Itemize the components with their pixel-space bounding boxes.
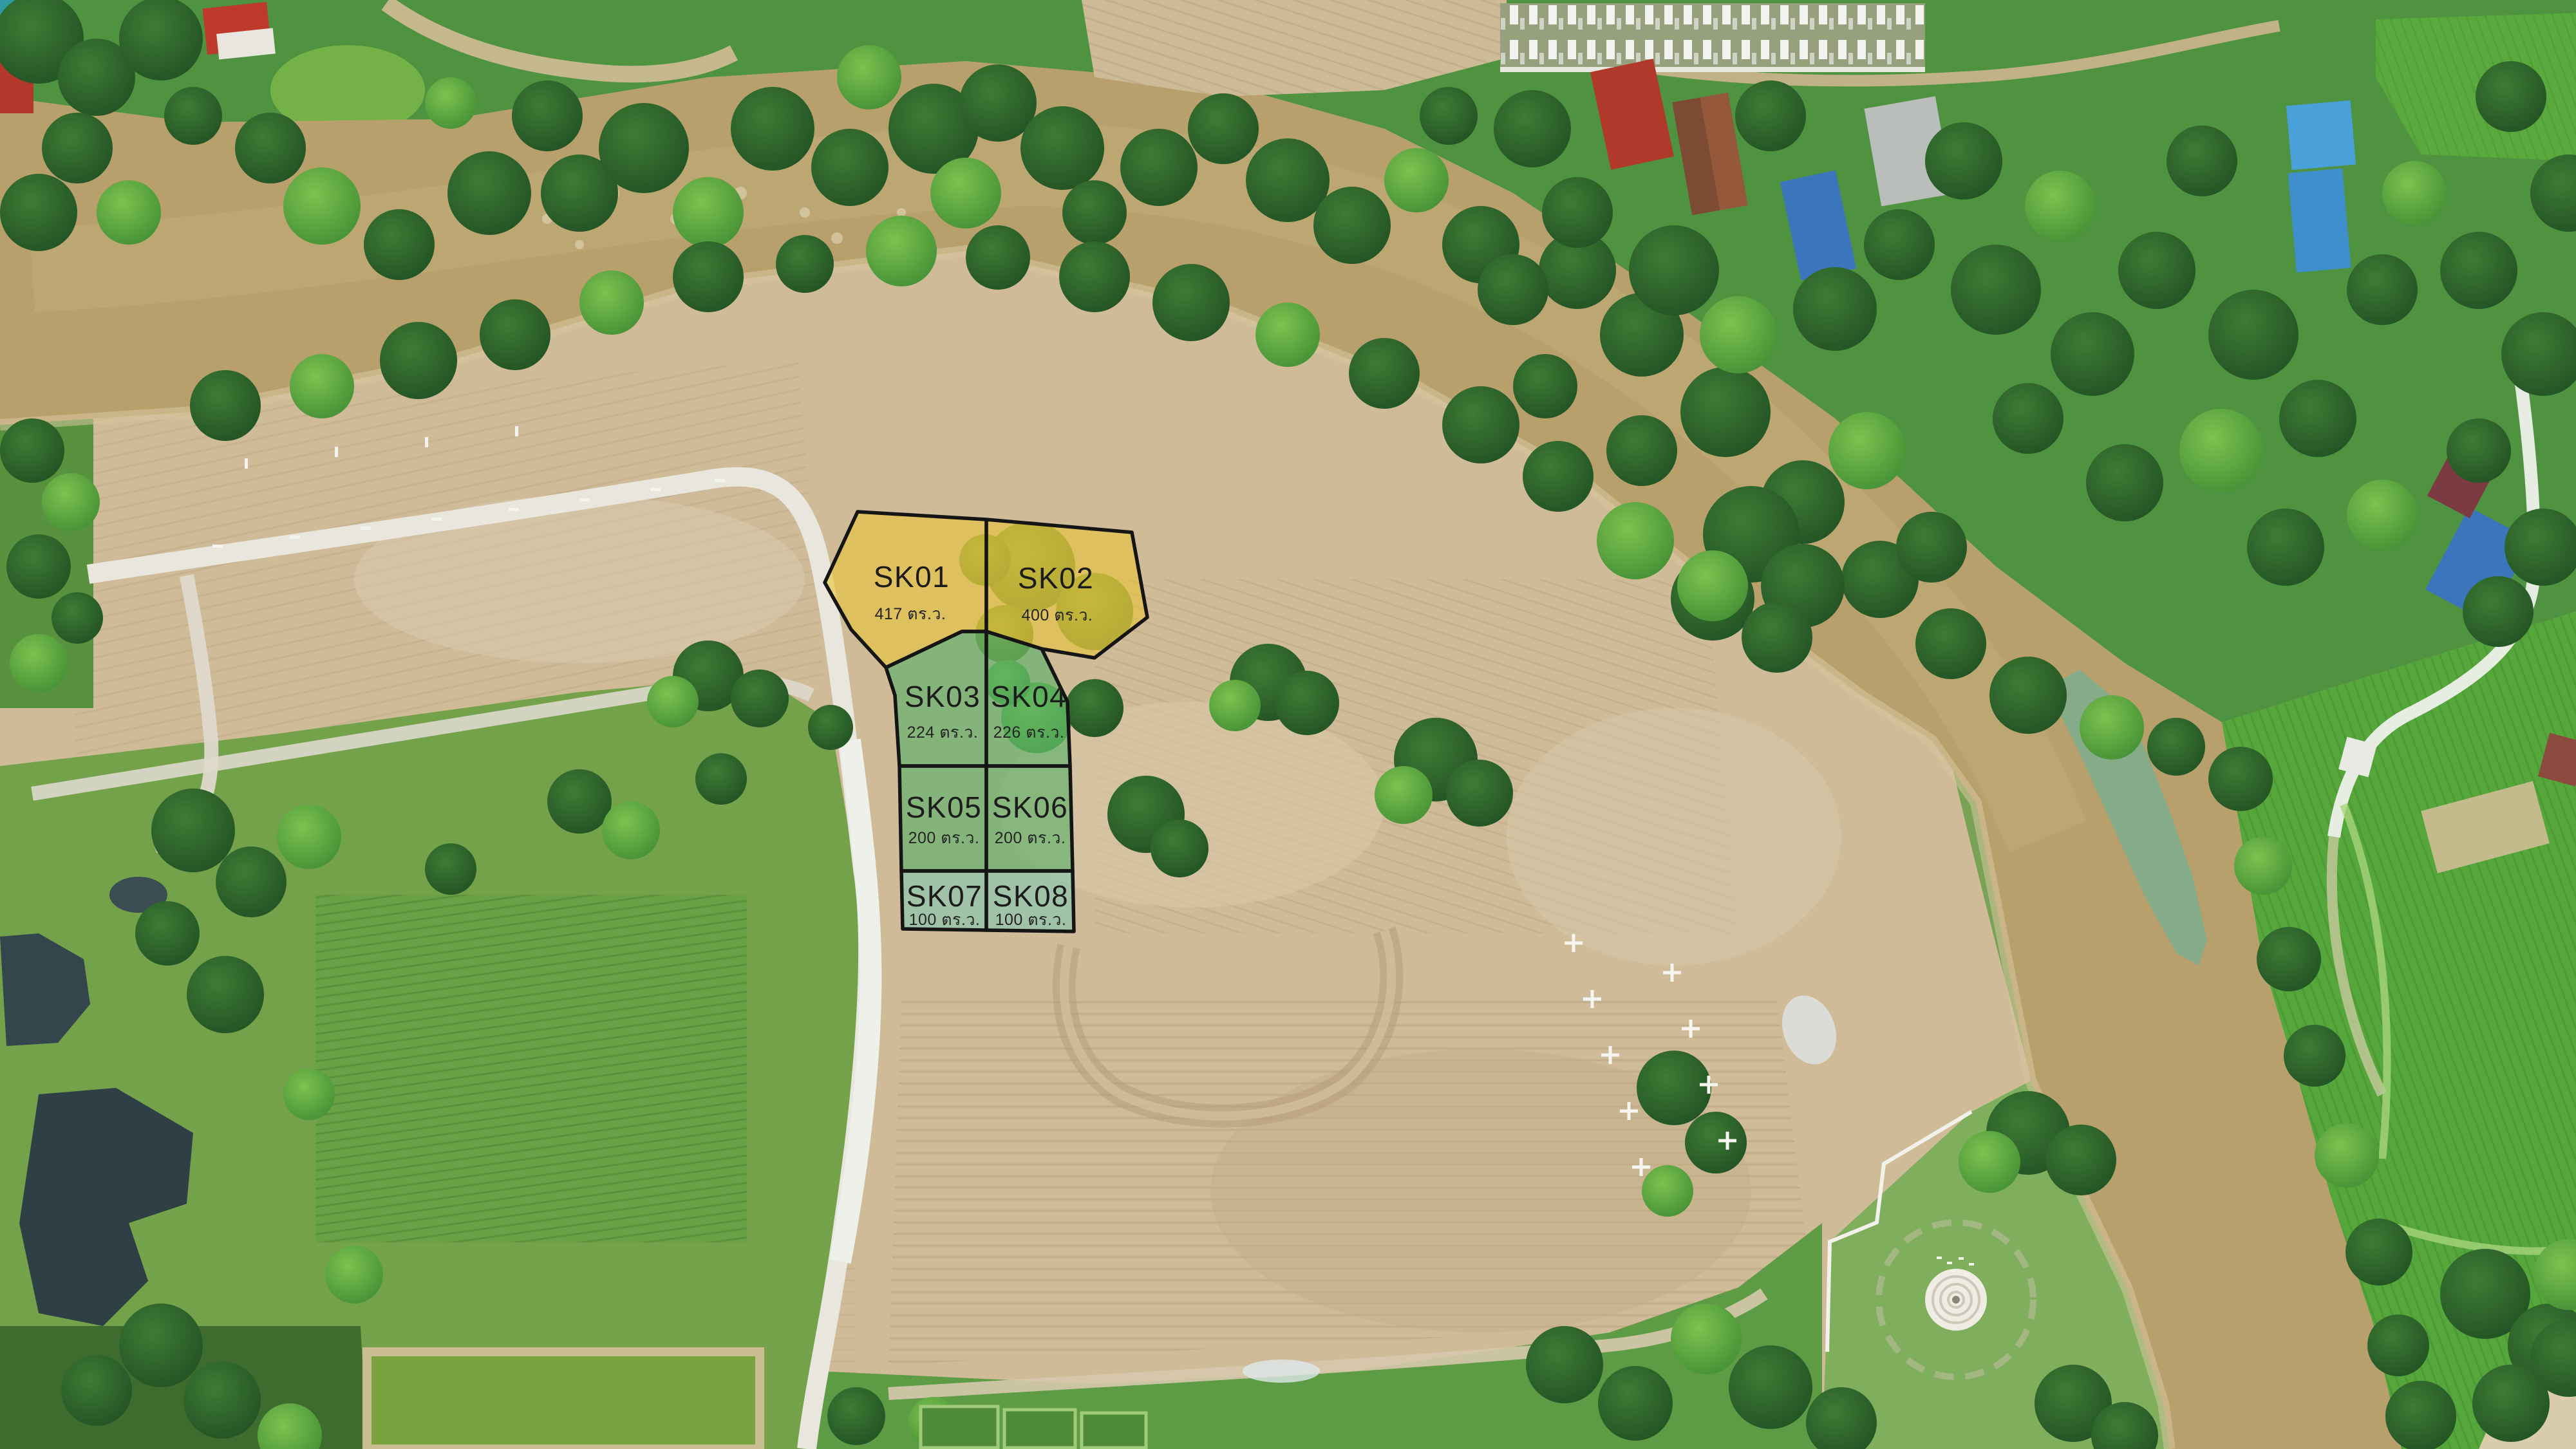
village-blue-house xyxy=(2286,100,2356,170)
plot-SK03-name: SK03 xyxy=(905,680,981,713)
plot-SK01-name: SK01 xyxy=(874,560,950,594)
crop-row-texture xyxy=(315,895,747,1242)
plot-SK07-name: SK07 xyxy=(907,879,983,913)
plot-SK07-area: 100 ตร.ว. xyxy=(909,911,981,929)
aerial-photo: SK01 417 ตร.ว. SK02 400 ตร.ว. SK03 224 ต… xyxy=(0,0,2576,1449)
wet-patch xyxy=(1243,1360,1320,1383)
plot-SK04-area: 226 ตร.ว. xyxy=(993,724,1065,742)
garden-plots xyxy=(921,1407,1146,1448)
plot-SK03-area: 224 ตร.ว. xyxy=(907,724,979,742)
plot-SK02-area: 400 ตร.ว. xyxy=(1022,606,1093,624)
plot-SK08-area: 100 ตร.ว. xyxy=(995,911,1067,929)
green-fish-pond xyxy=(367,1352,760,1449)
plot-SK05-area: 200 ตร.ว. xyxy=(908,829,980,847)
plot-SK02-name: SK02 xyxy=(1018,561,1095,595)
plot-SK05-name: SK05 xyxy=(906,790,982,824)
plot-SK01-area: 417 ตร.ว. xyxy=(875,605,946,623)
plot-SK06-area: 200 ตร.ว. xyxy=(995,829,1066,847)
plot-SK08-name: SK08 xyxy=(993,879,1069,913)
cemetery-rows xyxy=(1500,3,1925,68)
plot-SK06-name: SK06 xyxy=(992,790,1069,824)
plot-SK04-name: SK04 xyxy=(991,680,1067,713)
village-blue-house xyxy=(2288,169,2351,273)
